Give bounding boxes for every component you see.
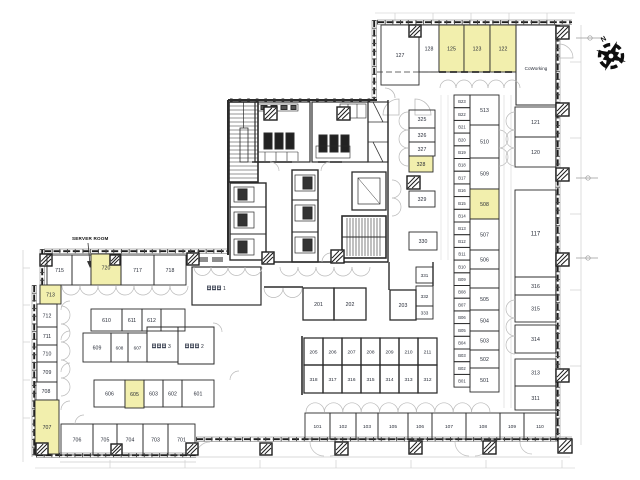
svg-text:609: 609 — [93, 345, 102, 351]
svg-text:B12: B12 — [458, 239, 466, 244]
svg-text:715: 715 — [55, 268, 64, 274]
svg-text:606: 606 — [105, 391, 114, 397]
svg-text:B05: B05 — [458, 328, 466, 333]
svg-text:704: 704 — [126, 437, 135, 443]
svg-text:705: 705 — [101, 437, 110, 443]
svg-text:B13: B13 — [458, 226, 466, 231]
svg-text:B14: B14 — [458, 213, 466, 218]
svg-text:509: 509 — [480, 171, 489, 177]
svg-text:108: 108 — [479, 424, 487, 430]
svg-text:202: 202 — [346, 302, 355, 308]
svg-text:708: 708 — [42, 389, 51, 395]
svg-text:201: 201 — [314, 302, 323, 308]
svg-text:710: 710 — [43, 351, 52, 357]
svg-text:510: 510 — [480, 139, 489, 145]
svg-text:106: 106 — [416, 424, 424, 430]
svg-text:508: 508 — [480, 202, 489, 208]
svg-text:717: 717 — [133, 268, 142, 274]
svg-text:117: 117 — [531, 231, 541, 237]
svg-text:B01: B01 — [458, 379, 466, 384]
svg-text:611: 611 — [128, 318, 136, 324]
svg-text:B11: B11 — [458, 252, 466, 257]
svg-text:2: 2 — [201, 344, 204, 350]
svg-text:328: 328 — [417, 162, 426, 168]
svg-text:709: 709 — [43, 370, 52, 376]
svg-text:125: 125 — [447, 46, 456, 52]
svg-text:B07: B07 — [458, 302, 466, 307]
svg-text:107: 107 — [445, 424, 453, 430]
svg-text:330: 330 — [419, 239, 428, 245]
svg-text:506: 506 — [480, 257, 489, 263]
svg-text:612: 612 — [147, 318, 156, 324]
svg-text:210: 210 — [404, 349, 412, 355]
svg-text:209: 209 — [385, 349, 393, 355]
svg-text:B15: B15 — [458, 201, 466, 206]
svg-text:CoWorking: CoWorking — [525, 66, 548, 71]
svg-text:B19: B19 — [458, 150, 466, 155]
svg-text:120: 120 — [531, 150, 540, 156]
svg-text:103: 103 — [363, 424, 371, 430]
svg-text:207: 207 — [347, 349, 355, 355]
svg-text:707: 707 — [43, 425, 52, 431]
svg-text:605: 605 — [130, 392, 139, 398]
svg-text:314: 314 — [531, 337, 540, 343]
svg-text:607: 607 — [134, 345, 142, 350]
svg-text:608: 608 — [116, 345, 124, 350]
svg-text:B17: B17 — [458, 175, 466, 180]
svg-text:203: 203 — [399, 303, 408, 309]
svg-text:128: 128 — [425, 46, 434, 52]
svg-text:313: 313 — [404, 377, 412, 383]
svg-text:109: 109 — [508, 424, 516, 430]
svg-text:333: 333 — [421, 310, 429, 315]
svg-text:603: 603 — [149, 391, 158, 397]
svg-text:B10: B10 — [458, 264, 466, 269]
svg-text:312: 312 — [423, 377, 431, 383]
svg-text:B23: B23 — [458, 99, 466, 104]
svg-text:B09: B09 — [458, 277, 466, 282]
svg-text:110: 110 — [536, 424, 544, 430]
svg-text:314: 314 — [385, 377, 393, 383]
svg-text:B18: B18 — [458, 163, 466, 168]
svg-text:504: 504 — [480, 318, 489, 324]
svg-text:B16: B16 — [458, 188, 466, 193]
svg-text:331: 331 — [421, 273, 429, 278]
svg-text:208: 208 — [366, 349, 374, 355]
svg-text:122: 122 — [499, 46, 508, 52]
svg-text:332: 332 — [421, 294, 429, 299]
svg-text:3: 3 — [168, 344, 171, 350]
svg-text:1: 1 — [223, 286, 226, 292]
svg-text:513: 513 — [480, 108, 489, 114]
svg-text:206: 206 — [328, 349, 336, 355]
svg-text:317: 317 — [328, 377, 336, 383]
svg-text:706: 706 — [73, 437, 82, 443]
svg-text:211: 211 — [424, 349, 432, 355]
svg-text:602: 602 — [168, 391, 177, 397]
svg-text:329: 329 — [418, 197, 427, 203]
svg-text:B22: B22 — [458, 112, 466, 117]
svg-text:123: 123 — [473, 46, 482, 52]
svg-text:SERVER ROOM: SERVER ROOM — [72, 236, 109, 241]
svg-text:B04: B04 — [458, 340, 466, 345]
svg-text:326: 326 — [418, 133, 427, 139]
svg-text:B20: B20 — [458, 137, 466, 142]
svg-text:315: 315 — [366, 377, 374, 383]
svg-text:711: 711 — [43, 334, 51, 340]
svg-text:205: 205 — [309, 349, 317, 355]
svg-text:501: 501 — [480, 378, 489, 384]
svg-text:101: 101 — [313, 424, 321, 430]
svg-text:B21: B21 — [458, 125, 466, 130]
svg-text:313: 313 — [531, 370, 540, 376]
svg-text:316: 316 — [531, 284, 540, 290]
svg-text:B02: B02 — [458, 366, 466, 371]
svg-text:701: 701 — [177, 437, 186, 443]
svg-text:327: 327 — [418, 147, 427, 153]
svg-text:127: 127 — [396, 53, 405, 59]
svg-text:105: 105 — [389, 424, 397, 430]
svg-text:121: 121 — [531, 120, 540, 126]
svg-text:502: 502 — [480, 357, 489, 363]
svg-text:B06: B06 — [458, 315, 466, 320]
svg-text:102: 102 — [339, 424, 347, 430]
svg-text:601: 601 — [194, 391, 203, 397]
svg-text:325: 325 — [418, 117, 427, 123]
svg-text:B03: B03 — [458, 353, 466, 358]
svg-text:315: 315 — [531, 306, 540, 312]
svg-text:311: 311 — [531, 396, 539, 402]
svg-text:713: 713 — [46, 292, 55, 298]
svg-text:718: 718 — [166, 268, 175, 274]
svg-text:505: 505 — [480, 297, 489, 303]
svg-text:316: 316 — [347, 377, 355, 383]
svg-text:712: 712 — [43, 313, 52, 319]
svg-text:503: 503 — [480, 338, 489, 344]
svg-text:507: 507 — [480, 232, 489, 238]
svg-text:318: 318 — [309, 377, 317, 383]
svg-text:703: 703 — [151, 437, 160, 443]
svg-text:720: 720 — [102, 265, 111, 271]
svg-text:B08: B08 — [458, 290, 466, 295]
svg-text:610: 610 — [102, 318, 111, 324]
